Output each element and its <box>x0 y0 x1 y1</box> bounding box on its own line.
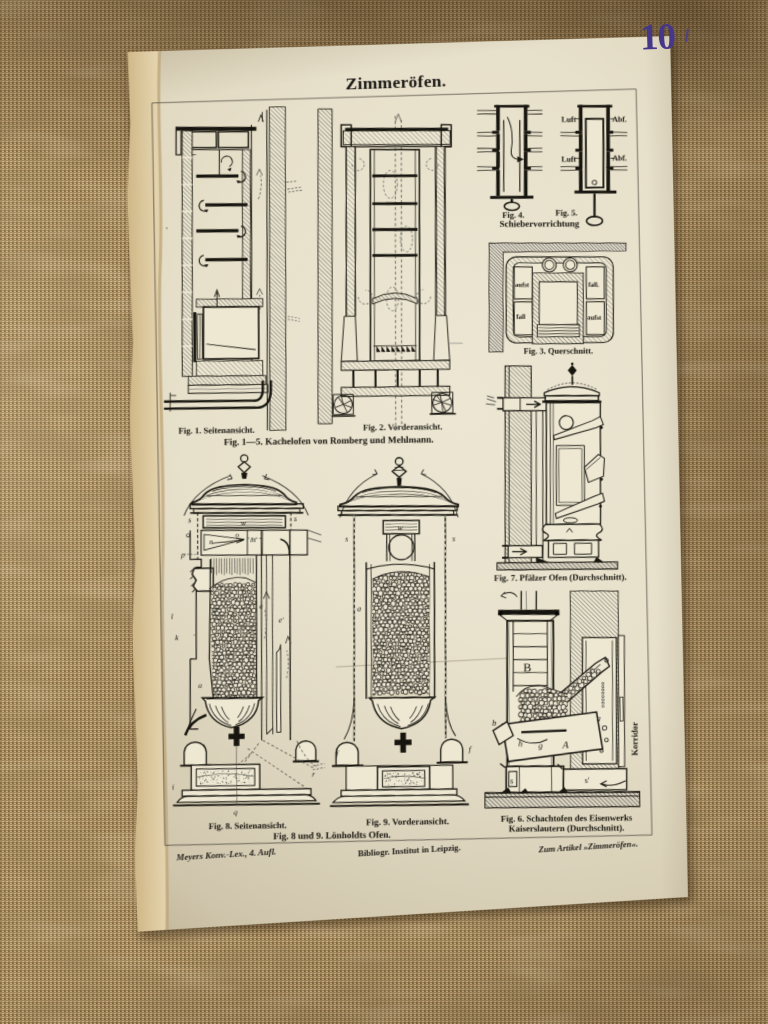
svg-text:f: f <box>469 745 473 754</box>
svg-text:b: b <box>492 718 497 728</box>
svg-text:s: s <box>188 515 191 524</box>
svg-text:Schiebervorrichtung: Schiebervorrichtung <box>500 219 580 229</box>
svg-text:Fig. 5.: Fig. 5. <box>555 208 577 218</box>
svg-text:p: p <box>180 550 185 559</box>
svg-text:aufst: aufst <box>515 282 530 289</box>
svg-text:e': e' <box>279 615 284 624</box>
svg-text:q: q <box>234 808 238 817</box>
svg-text:Abf.: Abf. <box>612 115 626 124</box>
svg-text:Fig. 3. Querschnitt.: Fig. 3. Querschnitt. <box>524 346 593 356</box>
svg-text:s: s <box>345 534 348 543</box>
svg-text:m: m <box>250 535 256 544</box>
svg-text:Fig. 8. Seitenansicht.: Fig. 8. Seitenansicht. <box>209 820 287 831</box>
svg-text:a: a <box>198 681 202 690</box>
svg-text:Fig. 7. Pfälzer Ofen (Durchs: Fig. 7. Pfälzer Ofen (Durchschnitt). <box>494 572 627 583</box>
svg-text:Korridor: Korridor <box>630 722 640 756</box>
svg-text:i: i <box>172 782 174 791</box>
svg-text:Luft: Luft <box>561 155 576 164</box>
svg-text:w: w <box>398 523 404 532</box>
svg-text:s: s <box>510 777 513 786</box>
svg-text:g: g <box>538 740 543 750</box>
svg-text:fall.: fall. <box>588 282 599 289</box>
svg-text:a: a <box>357 604 361 613</box>
svg-text:fall: fall <box>516 314 525 321</box>
svg-text:Kaiserslautern (Durchschnitt).: Kaiserslautern (Durchschnitt). <box>509 823 625 834</box>
svg-text:Fig. 2. Vorderansicht.: Fig. 2. Vorderansicht. <box>363 421 442 432</box>
svg-text:h: h <box>518 739 522 749</box>
svg-text:o: o <box>235 530 239 539</box>
svg-text:w: w <box>241 518 247 527</box>
svg-text:k: k <box>175 633 179 642</box>
svg-text:s: s <box>294 514 297 523</box>
svg-text:Fig. 1. Seitenansicht.: Fig. 1. Seitenansicht. <box>178 425 254 436</box>
svg-text:A: A <box>562 740 570 751</box>
svg-text:s: s <box>452 534 455 543</box>
svg-text:Fig. 9. Vorderansicht.: Fig. 9. Vorderansicht. <box>366 816 449 827</box>
svg-text:B: B <box>523 661 531 675</box>
svg-text:n: n <box>209 537 213 546</box>
svg-text:Luft: Luft <box>561 115 576 124</box>
svg-text:s': s' <box>585 775 590 785</box>
svg-text:Abf.: Abf. <box>612 154 626 163</box>
svg-text:e: e <box>390 654 394 663</box>
svg-text:aufst: aufst <box>587 315 602 322</box>
svg-text:r: r <box>312 770 315 779</box>
svg-text:l: l <box>171 612 173 621</box>
svg-text:a: a <box>597 713 601 723</box>
